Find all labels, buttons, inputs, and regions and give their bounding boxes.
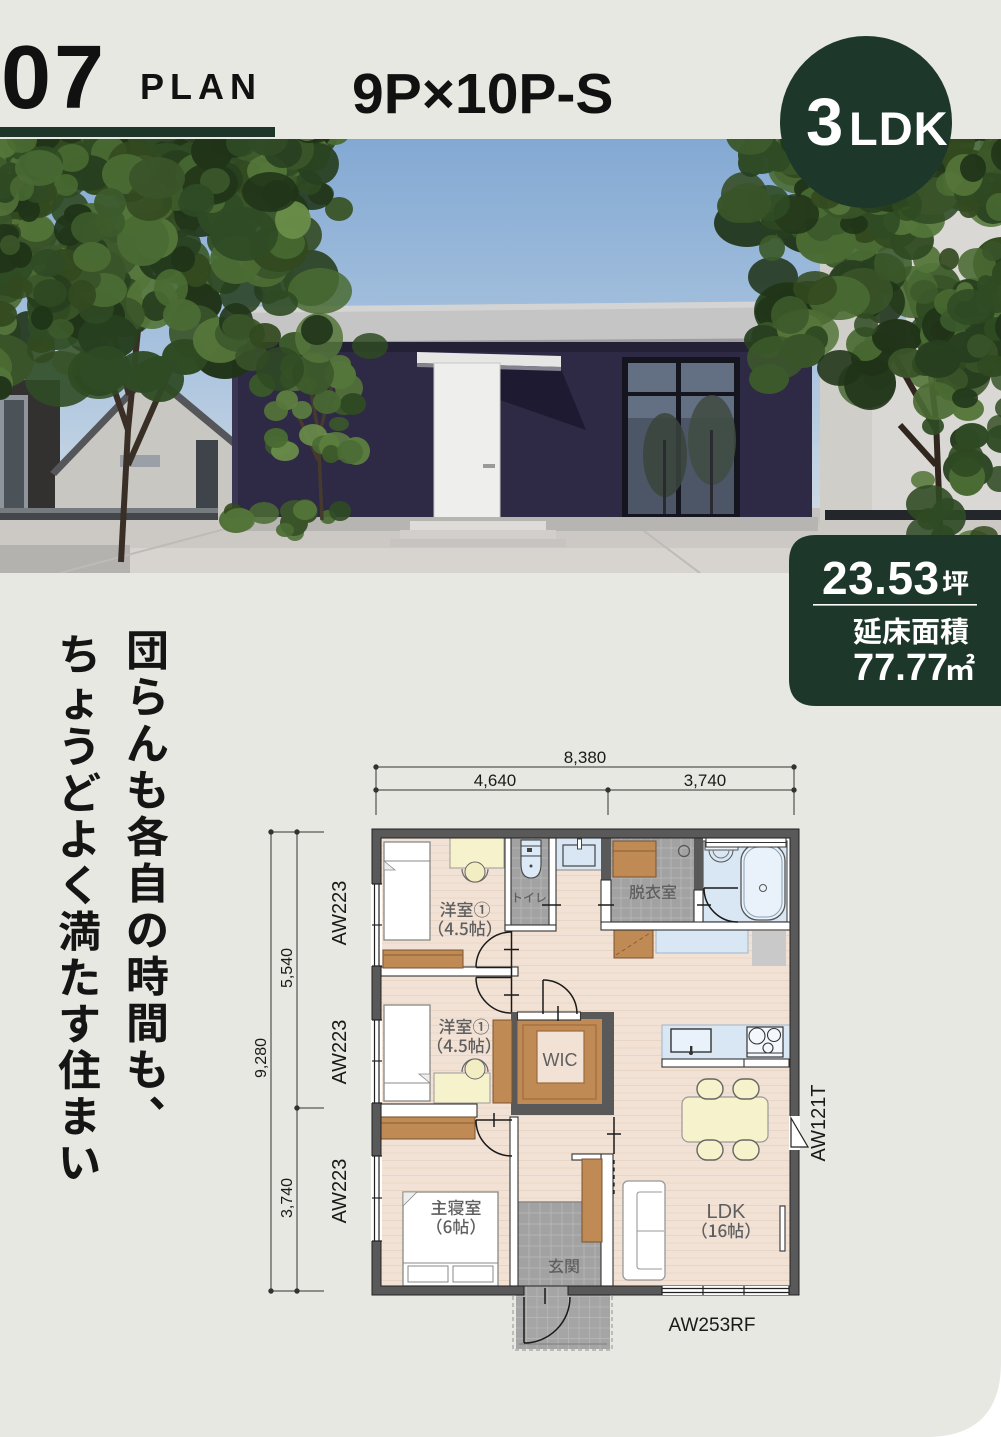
- svg-text:AW223: AW223: [329, 881, 351, 946]
- svg-text:LDK: LDK: [707, 1201, 747, 1223]
- svg-text:3,740: 3,740: [279, 1178, 296, 1218]
- svg-text:LDK: LDK: [849, 102, 949, 155]
- svg-text:8,380: 8,380: [564, 748, 607, 767]
- svg-text:3,740: 3,740: [684, 771, 727, 790]
- svg-text:23.53: 23.53: [822, 552, 940, 604]
- svg-text:9P×10P-S: 9P×10P-S: [352, 62, 613, 126]
- svg-text:07: 07: [1, 28, 107, 128]
- svg-text:9,280: 9,280: [253, 1038, 270, 1078]
- svg-text:WIC: WIC: [543, 1050, 578, 1070]
- svg-text:AW223: AW223: [329, 1159, 351, 1224]
- svg-text:AW253RF: AW253RF: [669, 1315, 756, 1336]
- svg-text:77.77: 77.77: [853, 647, 948, 689]
- svg-text:4,640: 4,640: [474, 771, 517, 790]
- svg-text:3: 3: [806, 85, 843, 160]
- svg-text:AW223: AW223: [329, 1020, 351, 1085]
- svg-text:AW121T: AW121T: [808, 1084, 830, 1161]
- svg-text:PLAN: PLAN: [140, 66, 262, 107]
- svg-text:5,540: 5,540: [279, 948, 296, 988]
